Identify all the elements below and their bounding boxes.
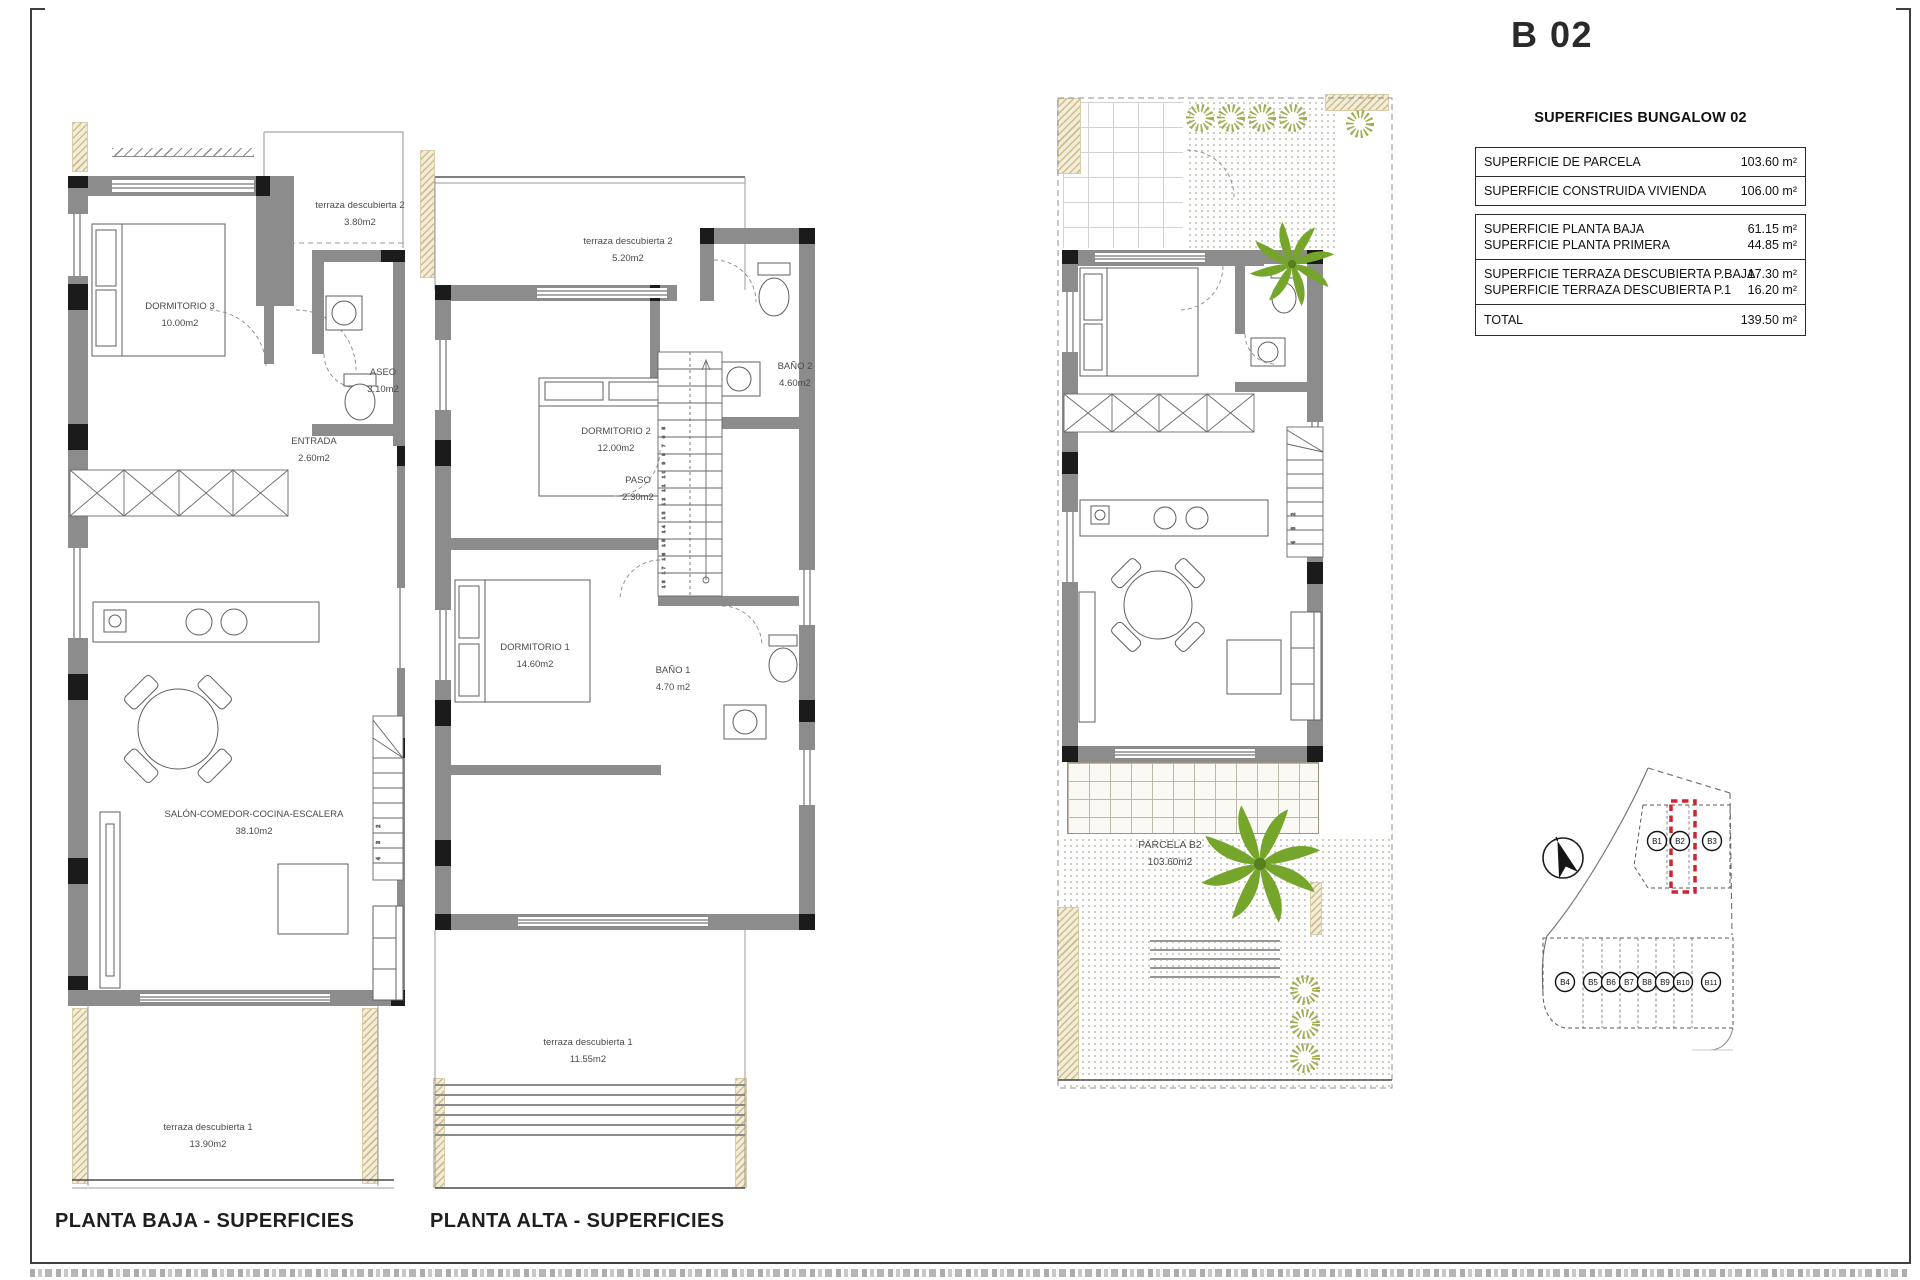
frame-tick-top-right [1896,8,1911,10]
site-unit-label: B5 [1588,978,1598,987]
table-row: SUPERFICIE CONSTRUIDA VIVIENDA 106.00 m² [1476,176,1805,205]
row-value: 103.60 m² [1741,148,1797,176]
row-label: TOTAL [1476,313,1523,327]
row-value: 106.00 m² [1741,177,1797,205]
table-row: SUPERFICIE TERRAZA DESCUBIERTA P.BAJA 17… [1476,266,1805,282]
site-unit-b7: B7 [1620,973,1639,992]
table-row-group: SUPERFICIE TERRAZA DESCUBIERTA P.BAJA 17… [1476,260,1805,304]
site-block-top: B1 B2 B3 [1634,801,1730,892]
caption-planta-alta: PLANTA ALTA - SUPERFICIES [430,1210,724,1233]
room-label-terraza2: terraza descubierta 25.20m2 [583,233,672,267]
closet-cabinets [1064,394,1254,432]
sink [1251,338,1285,366]
plan-sheet: B 02 [0,0,1920,1280]
room-label-bano1: BAÑO 14.70 m2 [656,662,691,696]
row-label: SUPERFICIE CONSTRUIDA VIVIENDA [1476,184,1706,198]
parcel-boundary [1058,98,1392,1088]
stair-numbers: 4 3 2 [1291,508,1297,544]
staircase: 4 3 2 [1287,427,1323,557]
surfaces-table: SUPERFICIES BUNGALOW 02 SUPERFICIE DE PA… [1475,110,1806,336]
page-title: B 02 [1511,14,1593,56]
row-label: SUPERFICIE DE PARCELA [1476,155,1641,169]
frame-left [30,8,32,1263]
tv-bench [1079,592,1095,722]
table-row: SUPERFICIE TERRAZA DESCUBIERTA P.1 16.20… [1476,282,1805,298]
site-unit-label: B11 [1705,978,1718,987]
row-value: 139.50 m² [1741,305,1797,335]
room-label-dormitorio1: DORMITORIO 114.60m2 [500,639,570,673]
table-row-group: SUPERFICIE PLANTA BAJA 61.15 m² SUPERFIC… [1476,215,1805,259]
bed [1080,268,1198,376]
row-value: 16.20 m² [1748,282,1797,298]
room-label-terraza2: terraza descubierta 23.80m2 [315,197,404,231]
frame-tick-top-left [30,8,45,10]
row-label: SUPERFICIE TERRAZA DESCUBIERTA P.BAJA [1476,267,1755,281]
site-unit-label: B3 [1707,837,1717,846]
table-row: SUPERFICIE DE PARCELA 103.60 m² [1476,148,1805,176]
room-label-aseo: ASEO3.10m2 [367,364,399,398]
palm-icon [1200,804,1320,924]
row-label: SUPERFICIE TERRAZA DESCUBIERTA P.1 [1476,283,1731,297]
dining-table [123,674,233,784]
site-unit-b2: B2 [1671,832,1690,851]
table-box-parcela: SUPERFICIE DE PARCELA 103.60 m² SUPERFIC… [1475,147,1806,206]
table-row: SUPERFICIE PLANTA PRIMERA 44.85 m² [1476,237,1805,253]
surfaces-table-heading: SUPERFICIES BUNGALOW 02 [1475,110,1806,128]
site-boundary [1542,768,1733,1050]
site-unit-label: B1 [1652,837,1662,846]
sofa [373,906,403,1000]
site-unit-b9: B9 [1656,973,1675,992]
table-box-plantas: SUPERFICIE PLANTA BAJA 61.15 m² SUPERFIC… [1475,214,1806,260]
room-label-paso: PASO2.30m2 [622,472,654,506]
north-compass-icon [1543,834,1583,878]
room-label-dormitorio3: DORMITORIO 310.00m2 [145,298,215,332]
tv-bench [100,812,120,988]
site-unit-label: B7 [1624,978,1634,987]
frame-bottom [30,1262,1911,1264]
site-unit-label: B2 [1675,837,1685,846]
structural-columns [435,228,815,930]
staircase: 4 3 2 [373,716,403,880]
closet-cabinets [70,470,288,516]
row-value: 44.85 m² [1748,237,1797,253]
site-plan: B1 B2 B3 B4 [1380,630,1840,1080]
toilet [769,635,797,682]
table-box-total: TOTAL 139.50 m² [1475,304,1806,336]
table-box-terrazas: SUPERFICIE TERRAZA DESCUBIERTA P.BAJA 17… [1475,259,1806,305]
site-unit-label: B4 [1560,978,1570,987]
frame-right [1909,8,1911,1263]
row-label: SUPERFICIE PLANTA BAJA [1476,222,1644,236]
table-row: SUPERFICIE PLANTA BAJA 61.15 m² [1476,221,1805,237]
ottoman [278,864,348,934]
parcel-label: PARCELA B2 103.60m2 [1138,837,1201,871]
parcela-drawing: 4 3 2 [1055,92,1395,1092]
table-row-total: TOTAL 139.50 m² [1476,305,1805,335]
site-unit-b11: B11 [1702,973,1721,992]
stair-numbers: 4 3 2 [376,819,382,860]
site-unit-b3: B3 [1703,832,1722,851]
room-label-dormitorio2: DORMITORIO 212.00m2 [581,423,651,457]
site-unit-b1: B1 [1648,832,1667,851]
dining-table [1110,557,1206,653]
site-unit-label: B9 [1660,978,1670,987]
row-label: SUPERFICIE PLANTA PRIMERA [1476,238,1670,252]
caption-planta-baja: PLANTA BAJA - SUPERFICIES [55,1210,354,1233]
toilet [758,263,790,316]
room-label-terraza1: terraza descubierta 113.90m2 [163,1119,252,1153]
row-value: 17.30 m² [1748,266,1797,282]
walls [435,228,815,930]
terrace1-boundary [72,1006,394,1188]
room-label-entrada: ENTRADA2.60m2 [291,433,336,467]
room-label-salon: SALÓN-COMEDOR-COCINA-ESCALERA38.10m2 [165,806,344,840]
shrub-icons [1190,108,1370,134]
kitchen-counter [93,602,319,642]
room-label-terraza1: terraza descubierta 111.55m2 [543,1034,632,1068]
stair-numbers: 18 17 16 15 14 13 12 11 10 9 8 7 6 5 [661,425,666,588]
bed [92,224,225,356]
row-value: 61.15 m² [1748,221,1797,237]
sofa [1291,612,1321,720]
gate-arc [1187,150,1234,197]
site-block-bottom: B4 B5 B6 B7 B8 B9 [1543,938,1733,1028]
site-unit-b5: B5 [1584,973,1603,992]
site-unit-label: B6 [1606,978,1616,987]
site-unit-b10: B10 [1674,973,1693,992]
site-unit-b6: B6 [1602,973,1621,992]
room-label-bano2: BAÑO 24.60m2 [778,358,813,392]
staircase: 18 17 16 15 14 13 12 11 10 9 8 7 6 5 [658,352,722,596]
site-unit-label: B10 [1676,978,1689,987]
shrub-icons [1294,979,1316,1069]
sink [724,705,766,739]
ottoman [1227,640,1281,694]
site-unit-b4: B4 [1556,973,1575,992]
kitchen-counter [1080,500,1268,536]
site-unit-label: B8 [1642,978,1652,987]
fineprint-strip [30,1269,1910,1277]
site-unit-b8: B8 [1638,973,1657,992]
sink [326,296,362,330]
planta-baja-drawing: 4 3 2 [60,118,405,1193]
sink [718,362,760,396]
